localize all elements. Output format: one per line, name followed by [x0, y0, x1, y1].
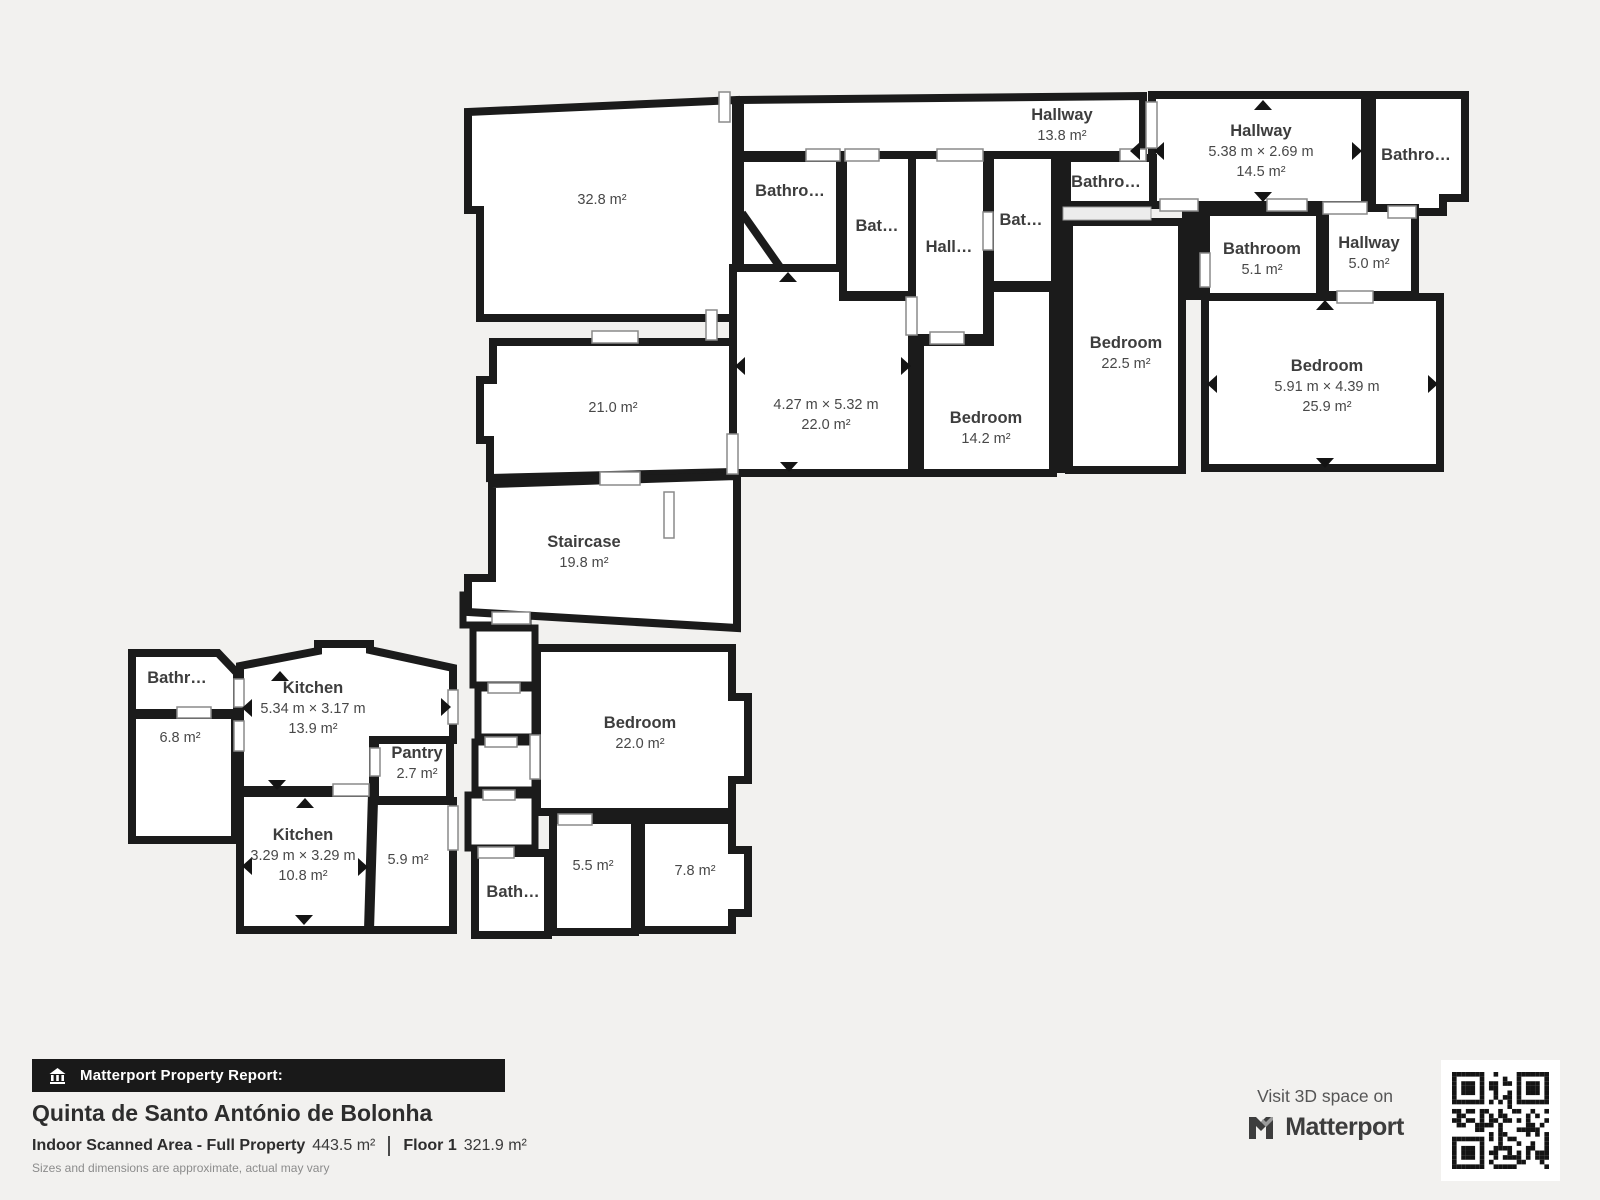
door-marker — [727, 434, 738, 474]
room-label-name: Bathro… — [755, 182, 825, 200]
room-label-name: Bathro… — [1381, 146, 1451, 164]
room-label-dims: 4.27 m × 5.32 m — [773, 397, 878, 413]
room-label-area: 2.7 m² — [396, 766, 437, 782]
door-marker — [333, 784, 369, 796]
matterport-logo: Matterport — [1246, 1112, 1404, 1142]
door-marker — [1323, 202, 1367, 214]
door-marker — [478, 847, 514, 858]
room-label-name: Bathr… — [147, 669, 207, 687]
room-label-area: 13.8 m² — [1037, 128, 1086, 144]
matterport-floorplan-page: Hallway13.8 m²Hallway5.38 m × 2.69 m14.5… — [0, 0, 1600, 1200]
door-marker — [234, 721, 244, 751]
wall-fill — [910, 340, 922, 473]
room-bathroom-a — [740, 158, 840, 268]
room-label-area: 10.8 m² — [278, 868, 327, 884]
room-label-area: 6.8 m² — [159, 730, 200, 746]
door-marker-gray — [1063, 207, 1151, 220]
room-room-22-0 — [733, 268, 912, 473]
report-bar: Matterport Property Report: — [32, 1059, 505, 1092]
qr-code-pattern — [1452, 1072, 1549, 1169]
door-marker — [1337, 291, 1373, 303]
door-marker — [488, 683, 520, 693]
room-label-area: 5.0 m² — [1348, 256, 1389, 272]
floor-plan: Hallway13.8 m²Hallway5.38 m × 2.69 m14.5… — [0, 0, 1600, 1200]
door-marker — [930, 332, 964, 344]
room-label-name: Bedroom — [1090, 334, 1162, 352]
room-label-area: 19.8 m² — [559, 555, 608, 571]
matterport-promo: Visit 3D space on Matterport — [1225, 1086, 1425, 1142]
door-marker — [1146, 102, 1157, 148]
visit-3d-label: Visit 3D space on — [1257, 1086, 1393, 1107]
room-label-name: Kitchen — [283, 679, 344, 697]
room-label-name: Bathro… — [1071, 173, 1141, 191]
floor-value: 321.9 m² — [464, 1137, 527, 1155]
room-room-32-8 — [468, 100, 736, 318]
door-marker — [1160, 199, 1198, 211]
door-marker — [234, 679, 244, 707]
area-stats: Indoor Scanned Area - Full Property 443.… — [32, 1136, 527, 1156]
disclaimer-text: Sizes and dimensions are approximate, ac… — [32, 1161, 329, 1175]
room-label-dims: 3.29 m × 3.29 m — [250, 848, 355, 864]
room-label-name: Bathroom — [1223, 240, 1301, 258]
scanned-area-label: Indoor Scanned Area - Full Property — [32, 1137, 305, 1155]
room-label-area: 5.9 m² — [387, 852, 428, 868]
floor-label: Floor 1 — [403, 1137, 456, 1155]
room-label-area: 22.0 m² — [615, 736, 664, 752]
door-marker — [1200, 253, 1210, 287]
room-label-name: Bedroom — [604, 714, 676, 732]
door-marker — [558, 814, 592, 825]
room-label-name: Kitchen — [273, 826, 334, 844]
door-marker — [600, 472, 640, 485]
room-label-area: 7.8 m² — [674, 863, 715, 879]
door-marker — [483, 790, 515, 800]
room-label-name: Hallway — [1338, 234, 1400, 252]
room-hallway-top — [740, 96, 1143, 155]
room-label-area: 14.5 m² — [1236, 164, 1285, 180]
door-marker — [592, 331, 638, 343]
room-label-name: Hall… — [926, 238, 973, 256]
room-label-name: Bat… — [855, 217, 898, 235]
building-icon — [48, 1067, 67, 1085]
stats-divider — [388, 1136, 390, 1156]
door-marker — [719, 92, 730, 122]
door-marker — [845, 149, 879, 161]
room-label-area: 25.9 m² — [1302, 399, 1351, 415]
room-label-dims: 5.38 m × 2.69 m — [1208, 144, 1313, 160]
door-marker — [530, 735, 540, 779]
door-marker — [906, 297, 917, 335]
corridor-cell — [473, 628, 535, 685]
room-label-area: 22.5 m² — [1101, 356, 1150, 372]
property-name: Quinta de Santo António de Bolonha — [32, 1100, 432, 1127]
room-label-name: Bath… — [486, 883, 539, 901]
door-marker — [485, 737, 517, 747]
room-label-name: Pantry — [391, 744, 443, 762]
room-label-dims: 5.91 m × 4.39 m — [1274, 379, 1379, 395]
room-label-dims: 5.34 m × 3.17 m — [260, 701, 365, 717]
room-label-area: 13.9 m² — [288, 721, 337, 737]
door-marker — [1267, 199, 1307, 211]
corridor-cell — [478, 688, 535, 737]
corridor-cell — [468, 795, 535, 848]
door-marker — [806, 149, 840, 161]
room-label-area: 5.1 m² — [1241, 262, 1282, 278]
room-label-name: Bedroom — [950, 409, 1022, 427]
matterport-wordmark: Matterport — [1285, 1113, 1404, 1142]
door-marker — [983, 212, 993, 250]
report-bar-label: Matterport Property Report: — [80, 1067, 283, 1084]
room-label-area: 21.0 m² — [588, 400, 637, 416]
matterport-icon — [1246, 1112, 1276, 1142]
door-marker — [664, 492, 674, 538]
door-marker — [177, 707, 211, 718]
qr-code — [1441, 1060, 1560, 1181]
door-marker — [1388, 206, 1416, 218]
room-label-name: Hallway — [1230, 122, 1292, 140]
room-label-area: 22.0 m² — [801, 417, 850, 433]
room-label-name: Hallway — [1031, 106, 1093, 124]
corridor-cell — [475, 742, 535, 790]
room-label-name: Bat… — [999, 211, 1042, 229]
door-marker — [706, 310, 717, 340]
door-marker — [937, 149, 983, 161]
room-label-area: 5.5 m² — [572, 858, 613, 874]
room-label-name: Bedroom — [1291, 357, 1363, 375]
scanned-area-value: 443.5 m² — [312, 1137, 375, 1155]
door-marker — [370, 748, 380, 776]
room-label-name: Staircase — [547, 533, 620, 551]
room-staircase — [468, 476, 737, 628]
door-marker — [492, 612, 530, 624]
room-room-5-5 — [553, 820, 635, 932]
room-label-area: 14.2 m² — [961, 431, 1010, 447]
room-label-area: 32.8 m² — [577, 192, 626, 208]
wall-fill — [1053, 155, 1071, 473]
door-marker — [448, 806, 458, 850]
